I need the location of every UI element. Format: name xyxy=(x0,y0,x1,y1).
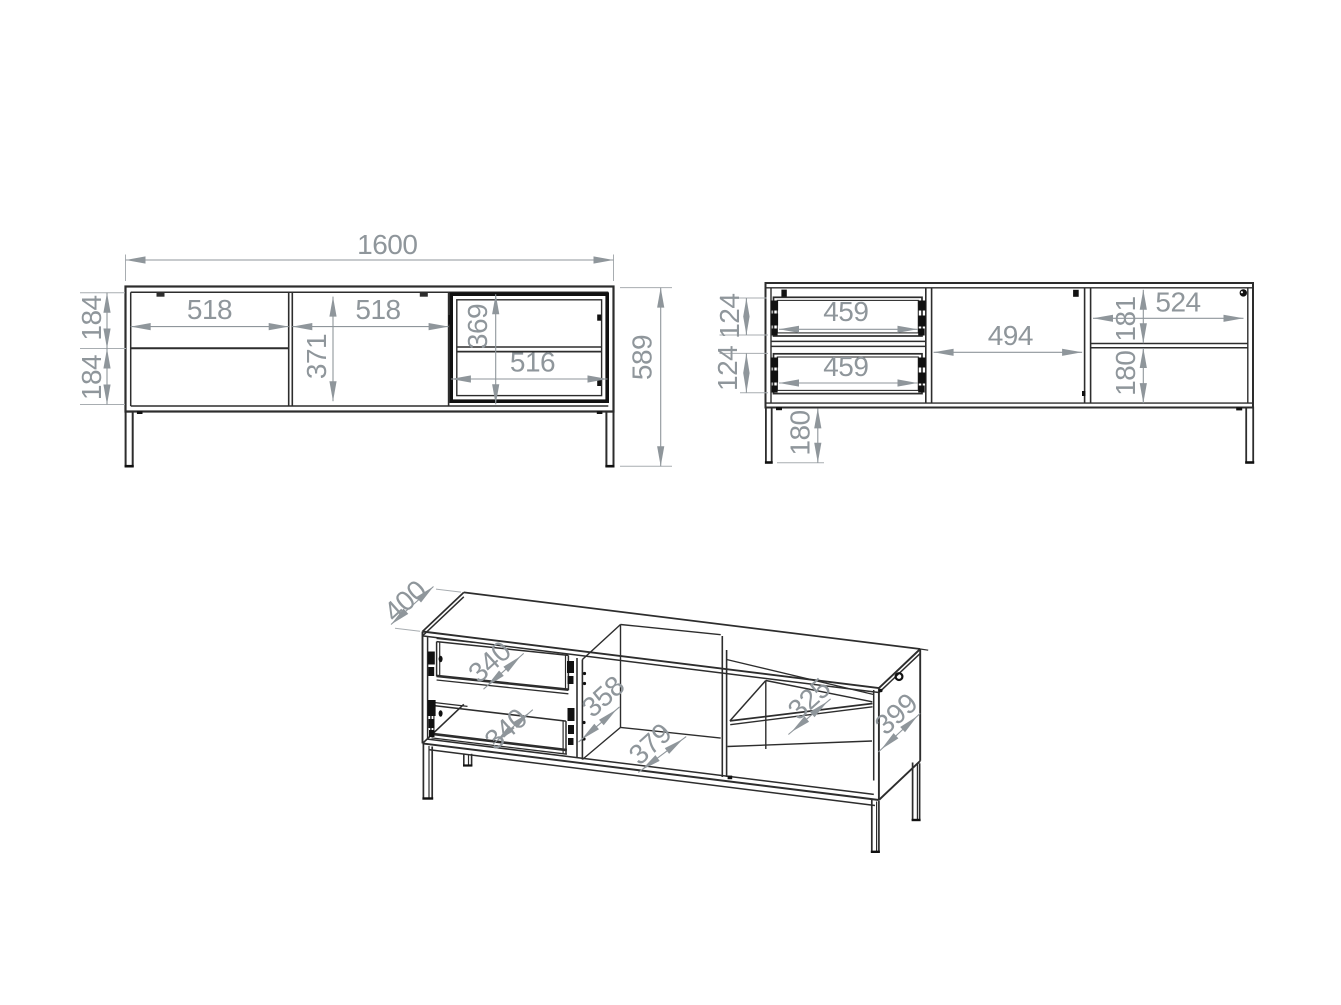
svg-text:180: 180 xyxy=(1110,351,1141,396)
svg-text:524: 524 xyxy=(1155,287,1200,318)
svg-text:459: 459 xyxy=(823,351,868,382)
svg-text:371: 371 xyxy=(301,334,332,379)
svg-text:516: 516 xyxy=(510,347,555,378)
svg-text:124: 124 xyxy=(714,294,745,339)
svg-text:124: 124 xyxy=(712,346,743,391)
svg-text:494: 494 xyxy=(988,320,1033,351)
svg-text:459: 459 xyxy=(823,296,868,327)
svg-text:181: 181 xyxy=(1110,296,1141,341)
svg-text:589: 589 xyxy=(627,335,658,380)
svg-text:518: 518 xyxy=(355,294,400,325)
svg-text:184: 184 xyxy=(76,355,107,400)
svg-text:180: 180 xyxy=(785,410,816,455)
svg-text:184: 184 xyxy=(76,295,107,340)
svg-text:369: 369 xyxy=(462,304,493,349)
svg-text:1600: 1600 xyxy=(357,229,417,260)
svg-text:518: 518 xyxy=(187,294,232,325)
